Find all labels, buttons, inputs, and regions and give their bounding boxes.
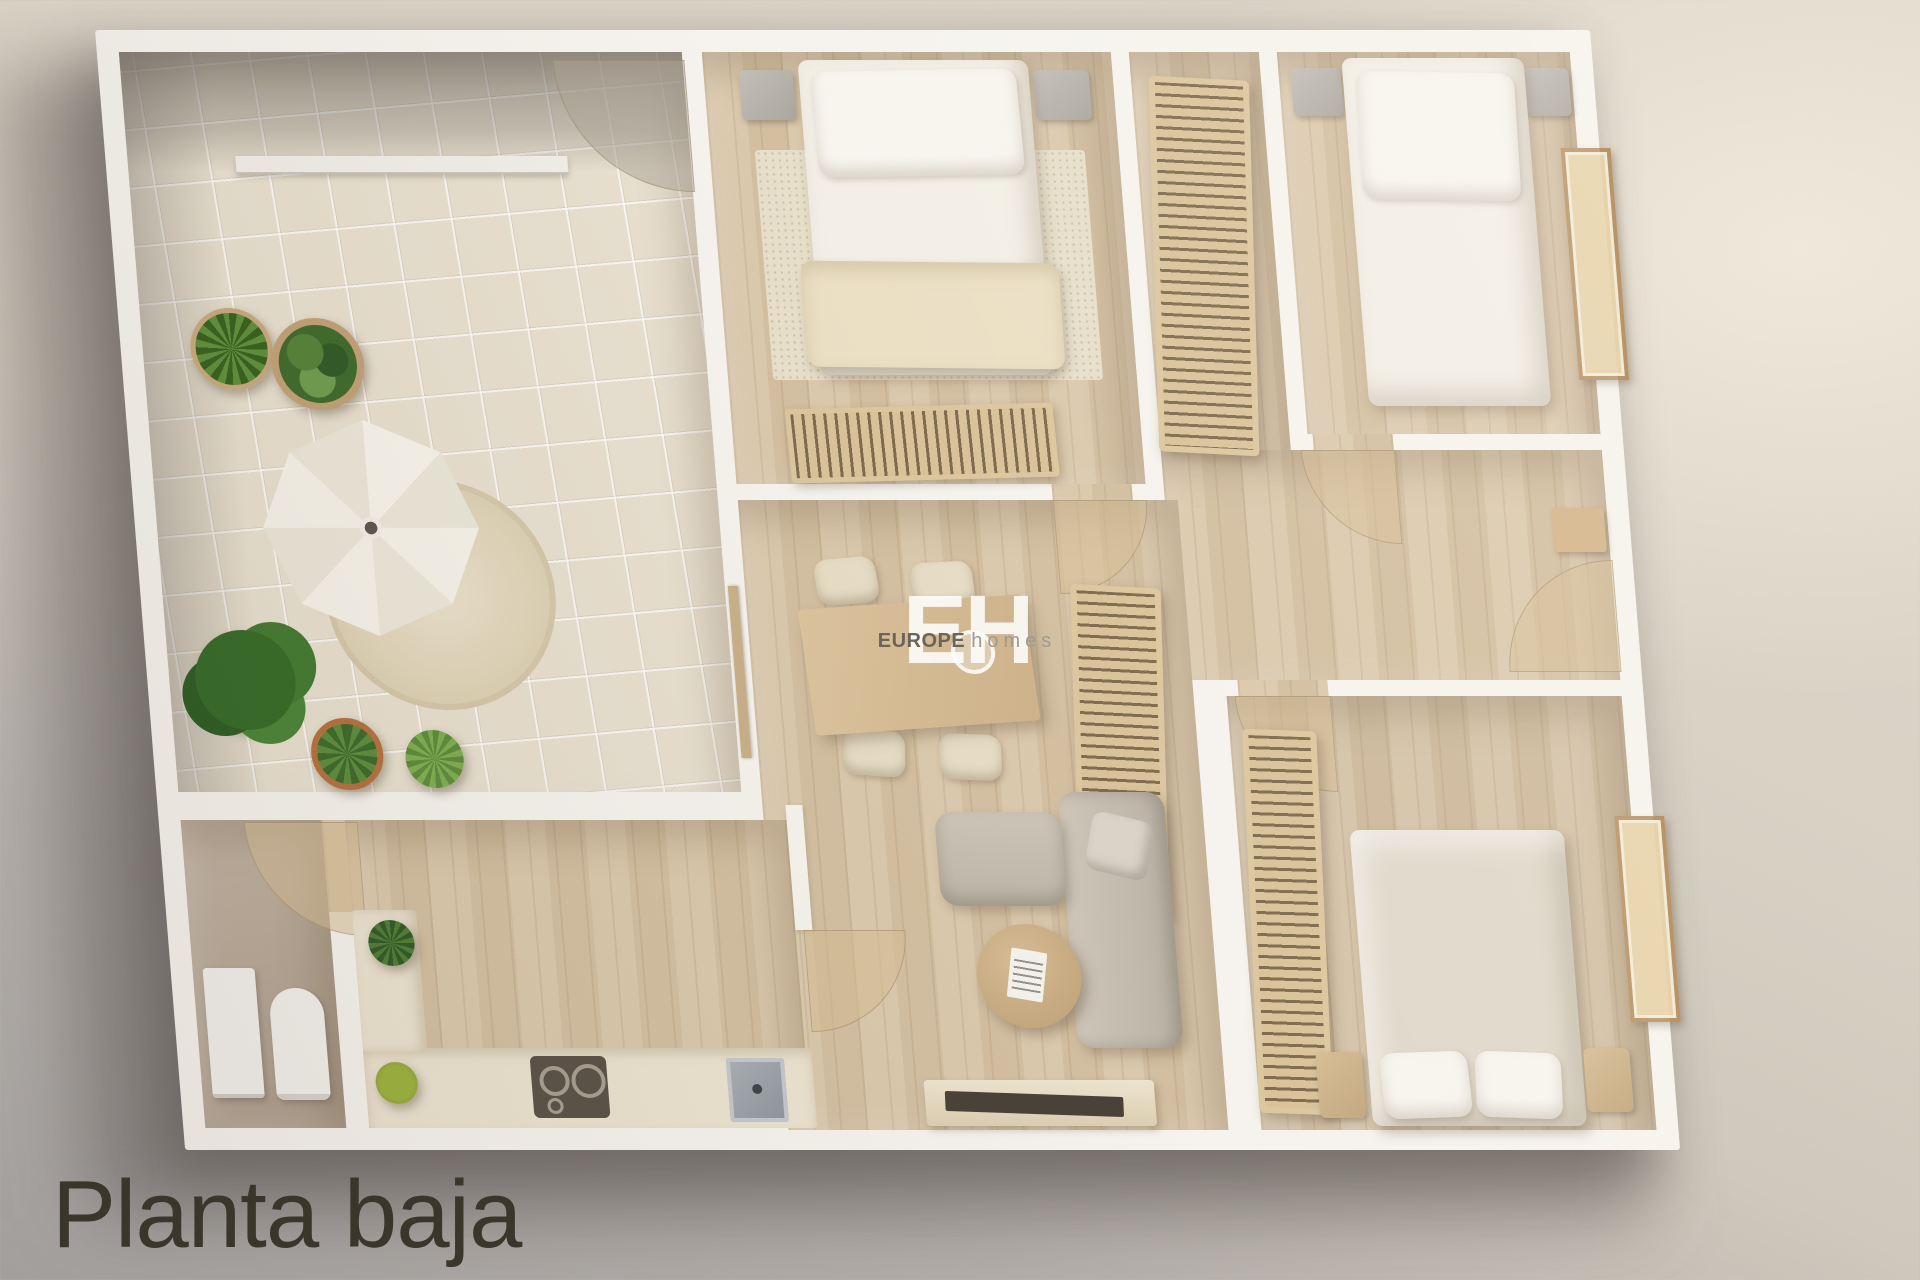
kitchen-sink [726, 1058, 789, 1122]
bed-pillow [809, 68, 1025, 178]
nightstand [1522, 68, 1572, 116]
dining-chair [843, 728, 906, 778]
hall-shelf [1551, 508, 1607, 552]
slatted-bench [785, 403, 1060, 484]
bed-pillow [1355, 71, 1521, 202]
dining-chair [812, 555, 881, 606]
door-gap-bedroom-1 [1052, 484, 1133, 500]
nightstand [1583, 1048, 1634, 1112]
bed-pillow [1378, 1050, 1473, 1119]
door-gap-bedroom-3 [1237, 680, 1328, 696]
cooktop [530, 1056, 611, 1118]
bathroom-sink [202, 968, 264, 1098]
dining-table [798, 594, 1041, 735]
door-gap-bedroom-2 [1313, 434, 1394, 450]
nightstand [1315, 1052, 1366, 1118]
toilet [268, 988, 331, 1100]
sofa-chaise [934, 812, 1068, 906]
page-title: Planta baja [52, 1160, 521, 1270]
magazine [1007, 947, 1048, 1002]
terrace-sliding-door [235, 156, 568, 174]
bed-blanket [800, 261, 1066, 370]
nightstand [1290, 68, 1344, 116]
louvered-wardrobe [1149, 76, 1260, 457]
nightstand [1032, 70, 1092, 120]
bed-pillow [1474, 1051, 1563, 1120]
nightstand [738, 70, 796, 120]
floor-plan [95, 30, 1680, 1150]
dining-chair [938, 733, 1002, 781]
